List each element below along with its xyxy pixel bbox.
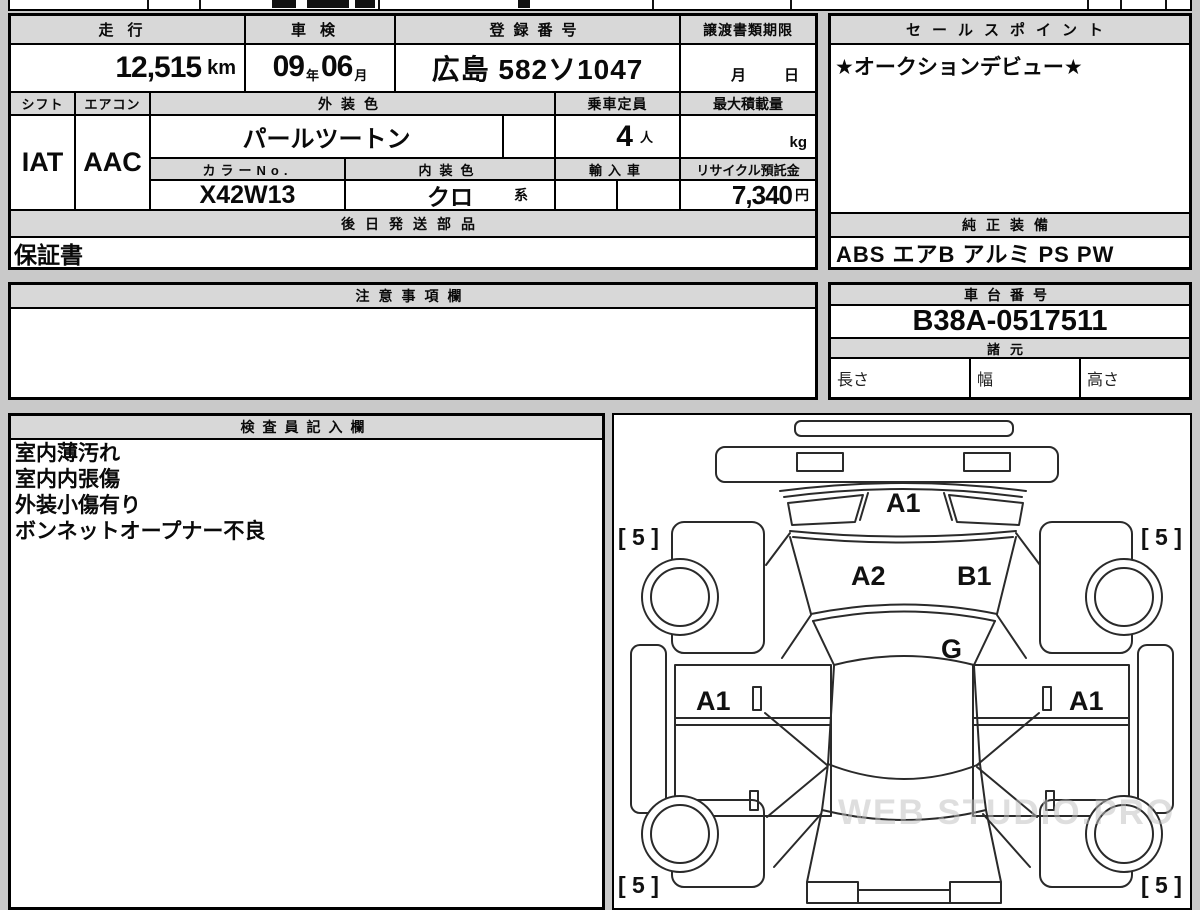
clipped-text-fragment [272,0,296,8]
color-no-header: カラーNo. [150,158,345,180]
shaken-month: 06 [321,50,352,84]
import-value-cell-1 [555,180,617,210]
inspector-notes-header: 検査員記入欄 [10,415,603,439]
damage-code-cowl: G [941,634,962,664]
inspector-note-line: ボンネットオープナー不良 [15,519,598,545]
aircon-value: AAC [75,115,150,210]
shift-value: IAT [10,115,75,210]
cell-divider [1165,0,1167,9]
damage-diagram-panel: A1 A2 B1 G A1 A1 [ 5 ] [ 5 ] [ 5 ] [ 5 ]… [612,413,1192,910]
door-handle-left-rear [753,687,761,710]
notes-header: 注意事項欄 [10,284,816,308]
trunk-bottom-edge [813,612,995,622]
c-pillar-right [997,615,1026,658]
damage-code-trunk-left: A2 [851,561,886,591]
fender-crease-right [983,814,1030,867]
wheel-front-left [642,796,718,872]
shaken-value: 09 年 06 月 [245,44,395,92]
interior-color-header: 内装色 [345,158,555,180]
door-handle-right-rear [1043,687,1051,710]
notes-table: 注意事項欄 [8,282,818,400]
clipped-text-fragment [355,0,375,8]
shaken-month-unit: 月 [354,65,367,84]
damage-code-rear-glass: A1 [886,488,921,518]
cell-divider [1087,0,1089,9]
tail-light-left [797,453,843,471]
deadline-header: 譲渡書類期限 [680,15,816,44]
deadline-value: 月 日 [680,44,816,92]
cowl-side-left [813,621,834,665]
mileage-unit: km [207,57,236,80]
sales-point-table: セールスポイント ★オークションデビュー★ 純正装備 ABS エアB アルミ P… [828,13,1192,270]
length-cell: 長さ [830,358,970,398]
door-gap-line-right [973,718,1129,725]
trunk-side-left [790,537,811,614]
mileage-number: 12,515 [115,51,201,85]
trunk-top-edge [790,531,1016,537]
cell-divider [652,0,654,9]
genuine-equipment-value: ABS エアB アルミ PS PW [830,237,1190,268]
recycle-value: 7,340 円 [680,180,816,210]
shift-header: シフト [10,92,75,115]
side-sill-right [1138,645,1173,813]
cell-divider [1120,0,1122,9]
trunk-bottom-edge [811,605,997,615]
shaken-year-unit: 年 [306,65,319,84]
a-pillar-right [977,713,1039,765]
interior-color-name: クロ [427,180,473,210]
fender-crease-left [774,814,821,867]
wheel-rear-left [642,559,718,635]
c-pillar-left [782,615,811,658]
cell-divider [147,0,149,9]
inspector-note-line: 室内内張傷 [15,467,598,493]
deadline-day-label: 日 [784,64,799,85]
chassis-number-header: 車台番号 [830,284,1190,305]
dimensions-header: 諸元 [830,338,1190,358]
damage-code-door-right: A1 [1069,686,1104,716]
registration-header: 登録番号 [395,15,680,44]
clipped-text-fragment [518,0,530,8]
import-value-cell-2 [617,180,680,210]
recycle-header: リサイクル預託金 [680,158,816,180]
inspector-note-line: 室内薄汚れ [15,441,598,467]
windshield-side-right [974,666,980,764]
exterior-color-empty-cell [503,115,555,158]
height-cell: 高さ [1080,358,1190,398]
pillar-line [860,493,868,520]
width-cell: 幅 [970,358,1080,398]
corner-grade-mark: [ 5 ] [618,524,659,550]
interior-color-suffix: 系 [514,185,528,205]
door-gap-line-left [675,718,831,725]
inspector-note-line: 外装小傷有り [15,493,598,519]
genuine-equipment-header: 純正装備 [830,213,1190,237]
damage-code-trunk-right: B1 [957,561,992,591]
trunk-side-right [997,537,1016,614]
later-parts-header: 後日発送部品 [10,210,816,237]
import-header: 輸入車 [555,158,680,180]
rear-fender-line-right [1016,533,1040,565]
chassis-number-value: B38A-0517511 [830,305,1190,338]
car-damage-diagram: A1 A2 B1 G A1 A1 [ 5 ] [ 5 ] [ 5 ] [ 5 ] [614,415,1190,905]
max-load-header: 最大積載量 [680,92,816,115]
capacity-unit: 人 [640,127,653,146]
corner-grade-mark: [ 5 ] [618,872,659,898]
aircon-header: エアコン [75,92,150,115]
rear-fender-line-left [766,533,790,565]
sales-point-header: セールスポイント [830,15,1190,44]
capacity-header: 乗車定員 [555,92,680,115]
notes-body [10,308,816,398]
interior-color-value: クロ 系 [345,180,555,210]
fender-crease-left [767,767,827,817]
clipped-text-fragment [307,0,349,8]
recycle-unit: 円 [795,185,809,205]
quarter-window-left [788,495,863,525]
exterior-color-header: 外装色 [150,92,555,115]
mileage-header: 走行 [10,15,245,44]
rear-bumper [795,421,1013,436]
a-pillar-left [765,713,827,765]
inspector-notes-table: 検査員記入欄 室内薄汚れ 室内内張傷 外装小傷有り ボンネットオープナー不良 [8,413,605,910]
mileage-value: 12,515 km [10,44,245,92]
shaken-header: 車検 [245,15,395,44]
corner-grade-mark: [ 5 ] [1141,524,1182,550]
hood-top-edge [822,810,986,820]
registration-value: 広島 582ソ1047 [395,44,680,92]
shaken-year: 09 [273,50,304,84]
deadline-month-label: 月 [731,64,746,85]
tail-light-right [964,453,1010,471]
chassis-spec-table: 車台番号 B38A-0517511 諸元 長さ 幅 高さ [828,282,1192,400]
pillar-line [944,493,952,520]
cell-divider [378,0,380,9]
clipped-top-row [8,0,1192,11]
auction-sheet-scan: { "page": {"background": "#c9c9c9", "hea… [0,0,1200,900]
cell-divider [199,0,201,9]
cell-divider [790,0,792,9]
capacity-number: 4 [616,120,632,154]
damage-code-door-left: A1 [696,686,731,716]
quarter-window-right [949,495,1023,525]
wheel-front-right [1086,796,1162,872]
vehicle-spec-table: 走行 車検 登録番号 譲渡書類期限 12,515 km 09 年 06 月 広島… [8,13,818,270]
windshield-bottom-edge [828,764,980,779]
inspector-notes-body: 室内薄汚れ 室内内張傷 外装小傷有り ボンネットオープナー不良 [10,439,603,908]
wheel-rear-right [1086,559,1162,635]
front-grille-bar [858,890,950,903]
recycle-amount: 7,340 [732,180,792,210]
side-sill-left [631,645,666,813]
max-load-value: kg [680,115,816,158]
trunk-top-edge [793,537,1013,543]
color-no-value: X42W13 [150,180,345,210]
capacity-value: 4 人 [555,115,680,158]
exterior-color-value: パールツートン [150,115,503,158]
later-parts-value: 保証書 [10,237,816,268]
cowl-side-right [974,621,995,665]
sales-point-value: ★オークションデビュー★ [830,44,1190,213]
corner-grade-mark: [ 5 ] [1141,872,1182,898]
